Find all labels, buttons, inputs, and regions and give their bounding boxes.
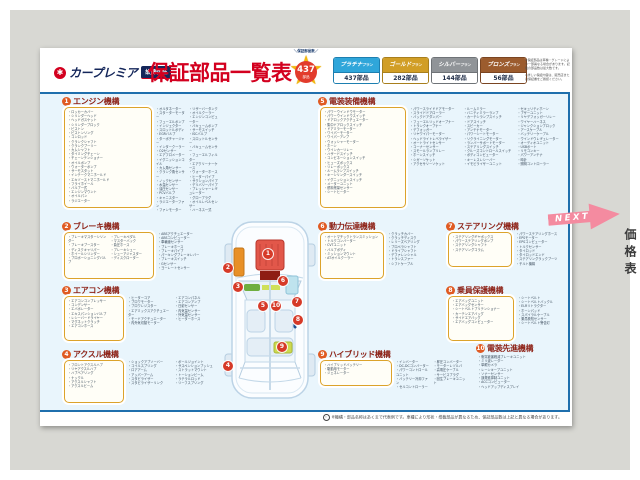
part-item: ・回生ブレーキユニット	[434, 377, 469, 385]
part-item: ・シートヒーター	[324, 190, 402, 194]
car-marker-aircon: 3	[233, 282, 243, 292]
part-item: ・ウォーターホース	[189, 170, 219, 174]
footer-fine-print: !※機構・部品名称はあくまで代表例です。車種により形状・搭載部品が異なるため、保…	[40, 414, 562, 421]
part-item: ・ATオイルクーラー	[324, 256, 380, 260]
header-note-line: ※詳しい保証内容は、販売店または保証書をご確認ください。	[525, 73, 570, 81]
part-item: ・チルト機構	[516, 262, 568, 266]
part-item: ・エアミックスアクチュエーター	[128, 309, 172, 317]
section-heading: 8乗員保護機構	[446, 285, 503, 296]
part-item: ・シートベルト警告灯	[518, 321, 568, 325]
highlighted-parts-box: ・エアバッグユニット・エアバッグセンサー・シートベルトプリテンショナー・カーテン…	[448, 296, 514, 341]
parts-count-value: 437	[297, 66, 315, 75]
brand-logo-icon: ✱	[54, 67, 66, 79]
section-number-icon: 9	[318, 350, 327, 359]
section-title: 電装先進機構	[487, 343, 533, 354]
parts-list-area: 12345678910 1エンジン機構・ロッカーカバー・シリンダーヘッド・ヘッド…	[40, 92, 570, 412]
part-item: ・フューエルフィルター	[189, 153, 219, 161]
section-heading: 1エンジン機構	[62, 96, 119, 107]
parts-count-circle: 437 部品	[295, 61, 317, 83]
section-title: ブレーキ機構	[73, 221, 119, 232]
section-title: ハイブリッド機構	[329, 349, 390, 360]
section-heading: 3エアコン機構	[62, 285, 119, 296]
section-number-icon: 1	[62, 97, 71, 106]
highlighted-parts-box: ・エアコンコンプレッサー・コンデンサー・エバポレーター・エキスパンションバルブ・…	[64, 296, 124, 341]
price-list-side-label: 価格表	[622, 228, 639, 279]
header-fine-print: ※保証部品は車種・グレードにより一部異なる場合があります。記載の部品数は最大数で…	[525, 58, 570, 83]
plan-chip-gold: ゴールドプラン282部品	[382, 57, 429, 84]
section-heading: 2ブレーキ機構	[62, 221, 119, 232]
part-item: ・ステアリングコラム	[452, 248, 508, 252]
part-item: ・エアフロメーター	[156, 153, 186, 157]
section-number-icon: 6	[318, 222, 327, 231]
parts-list: ・シートベルト・シートベルトバックル・ELRリトラクター・ホーンパッド・スパイラ…	[518, 296, 568, 326]
car-marker-hybrid: 9	[277, 342, 287, 352]
highlighted-parts-box: ・ステアリングギヤボックス・パワーステアリングポンプ・ステアリングシャフト・ステ…	[448, 232, 512, 267]
section-heading: 4アクスル機構	[62, 349, 119, 360]
parts-count-unit: 部品	[303, 75, 310, 79]
plan-part-count: 437部品	[334, 72, 379, 84]
part-item: ・ラジエーター	[68, 199, 148, 203]
part-item: ・アクスルビーム	[68, 384, 120, 388]
section-title: 動力伝達機構	[329, 221, 375, 232]
plan-part-count: 282部品	[383, 72, 428, 84]
plan-part-count: 144部品	[432, 72, 477, 84]
highlighted-parts-box: ・フロントアクスルハブ・リヤアクスルハブ・ハブベアリング・ナックル・アクスルシャ…	[64, 360, 124, 403]
car-marker-safety: 8	[293, 315, 303, 325]
section-title: エアコン機構	[73, 285, 119, 296]
part-item: ・照明コントローラー	[517, 162, 568, 166]
car-marker-adas: 10	[271, 301, 281, 311]
part-item: ・エアコンホース	[68, 324, 120, 328]
page-title: 保証部品一覧表	[148, 57, 292, 87]
highlighted-parts-box: ・ハイブリッドバッテリー・駆動用モーター・ジェネレーター	[320, 360, 392, 386]
part-item: ・ジェネレーター	[324, 371, 388, 375]
part-item: ・ハーネス一式	[189, 208, 219, 212]
part-item: ・スロットルセンサー	[189, 137, 219, 145]
part-item: ・ファンモーター	[156, 208, 186, 212]
plan-tier-row: プラチナプラン437部品ゴールドプラン282部品シルバープラン144部品ブロンズ…	[333, 57, 527, 84]
section-number-icon: 5	[318, 97, 327, 106]
part-item: ・プレッシャーレギュレーター	[189, 187, 219, 195]
car-marker-drivetrain: 6	[278, 276, 288, 286]
section-title: アクスル機構	[73, 349, 119, 360]
parts-list: ・インバーター・DC-DCコンバーター・パワーコントロールユニット・バッテリー冷…	[396, 360, 468, 390]
part-item: ・ラジエーターファン	[156, 200, 186, 208]
parts-list: ・ABSアクチュエーター・ABSコンピューター・車輪速センサー・ブレーキホース・…	[158, 232, 219, 270]
part-item: ・クランク角センサー	[156, 170, 186, 178]
part-item: ・内外気切替モーター	[128, 321, 172, 325]
plan-part-count: 56部品	[481, 72, 526, 84]
part-item: ・ヨーレートセンサー	[158, 266, 219, 270]
section-number-icon: 8	[446, 286, 455, 295]
part-item: ・スタビライザーリンク	[128, 381, 172, 385]
note-icon: !	[323, 414, 330, 421]
section-number-icon: 10	[476, 344, 485, 353]
header-note-line: ※保証部品は車種・グレードにより一部異なる場合があります。記載の部品数は最大数で…	[525, 58, 570, 70]
car-marker-brake: 2	[223, 263, 233, 273]
plan-chip-platinum: プラチナプラン437部品	[333, 57, 380, 84]
section-heading: 6動力伝達機構	[318, 221, 375, 232]
parts-list: ・パワーステアリングホース・EPSモーター・EPSコンピューター・トルクセンサー…	[516, 232, 568, 266]
part-item: ・プロポーショニングバルブ	[68, 256, 108, 264]
part-item: ・シフトケーブル	[388, 262, 444, 266]
section-heading: 7ステアリング機構	[446, 221, 519, 232]
footer-note-text: ※機構・部品名称はあくまで代表例です。車種により形状・搭載部品が異なるため、保証…	[332, 415, 562, 420]
parts-list: ・ショックアブソーバー・コイルスプリング・ロアアーム・アッパーアーム・スタビライ…	[128, 360, 219, 385]
part-item: ・セルコントローラー	[396, 385, 431, 389]
car-diagram: 12345678910	[220, 218, 320, 402]
part-item: ・ヒーターホース	[175, 317, 219, 321]
section-title: 電装装備機構	[329, 96, 375, 107]
section-heading: 5電装装備機構	[318, 96, 375, 107]
plan-chip-bronze: ブロンズプラン56部品	[480, 57, 527, 84]
parts-list: ・オルタネーター・スターターモーター・フューエルポンプ・インジェクター・スロット…	[156, 107, 219, 212]
part-item: ・エンジンコンピューター	[189, 115, 219, 123]
highlighted-parts-box: ・ロッカーカバー・シリンダーヘッド・ヘッドガスケット・シリンダーブロック・ピスト…	[64, 107, 152, 208]
part-item: ・ディスクローター	[111, 256, 151, 260]
brand-name: カープレミア	[69, 64, 137, 81]
car-marker-electrical: 5	[258, 301, 268, 311]
plan-chip-silver: シルバープラン144部品	[431, 57, 478, 84]
car-marker-engine: 1	[263, 249, 273, 259]
parts-count-badge: ＼保証部品数／ ★ 437 部品	[283, 49, 329, 91]
car-marker-steering: 7	[292, 297, 302, 307]
warranty-parts-poster: ✱ カープレミア 故障保証 保証部品一覧表 ＼保証部品数／ ★ 437 部品 プ…	[40, 48, 572, 426]
part-item: ・アクセサリーソケット	[410, 162, 461, 166]
part-item: ・パワーコントロールユニット	[396, 368, 431, 376]
desk-background: ✱ カープレミア 故障保証 保証部品一覧表 ＼保証部品数／ ★ 437 部品 プ…	[10, 10, 630, 470]
parts-list: ・衝突被害軽減ブレーキユニット・ミリ波レーダー・単眼カメラ・レーンキープユニット…	[478, 355, 570, 389]
part-item: ・リーフスプリング	[175, 381, 219, 385]
section-number-icon: 7	[446, 222, 455, 231]
part-item: ・イモビライザーユニット	[464, 162, 515, 166]
parts-list: ・クラッチカバー・クラッチディスク・レリーズベアリング・プロペラシャフト・ドライ…	[388, 232, 444, 266]
section-title: ステアリング機構	[457, 221, 519, 232]
section-number-icon: 2	[62, 222, 71, 231]
highlighted-parts-box: ・ブレーキマスターシリンダー・ブレーキブースター・ディスクキャリパー・ホイールシ…	[64, 232, 154, 279]
part-item: ・ヘッドアップディスプレイ	[478, 385, 570, 389]
section-heading: 10電装先進機構	[476, 343, 533, 354]
section-heading: 9ハイブリッド機構	[318, 349, 390, 360]
highlighted-parts-box: ・パワーウインドウモーター・パワーウインドウスイッチ・ドアロックアクチュエーター…	[320, 107, 406, 208]
highlighted-parts-box: ・オートマチックトランスミッション・トルクコンバーター・CVTユニット・バルブボ…	[320, 232, 384, 279]
section-title: 乗員保護機構	[457, 285, 503, 296]
part-item: ・イグニッションコイル	[156, 158, 186, 166]
section-number-icon: 3	[62, 286, 71, 295]
part-item: ・オイルレベルセンサー	[189, 200, 219, 208]
car-top-view	[220, 218, 320, 402]
section-title: エンジン機構	[73, 96, 119, 107]
parts-list: ・パワースライドドアモーター・スライドドアローラー・バックドアダンパー・フューエ…	[410, 107, 568, 166]
part-item: ・スターターモーター	[156, 111, 186, 119]
car-marker-axle: 4	[223, 361, 233, 371]
part-item: ・エアバッグコンピューター	[452, 320, 510, 324]
section-number-icon: 4	[62, 350, 71, 359]
parts-list: ・ヒーターコア・ブロワモーター・ブロワレジスター・エアミックスアクチュエーター・…	[128, 296, 219, 326]
part-item: ・ターボチャージャー	[156, 137, 186, 145]
